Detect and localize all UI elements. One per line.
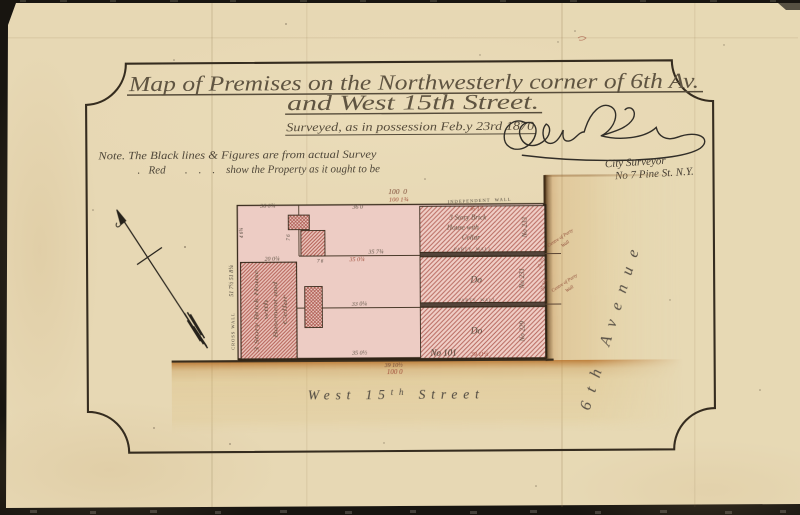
svg-text:No 233: No 233	[521, 217, 529, 239]
svg-text:3 Story Brick: 3 Story Brick	[448, 213, 487, 221]
svg-text:36 1¼: 36 1¼	[468, 206, 485, 212]
svg-text:7 6: 7 6	[287, 234, 292, 241]
svg-text:Note. The Black lines & Figure: Note. The Black lines & Figures are from…	[97, 149, 376, 163]
svg-text:35 0¼: 35 0¼	[349, 257, 366, 263]
svg-text:100 0: 100 0	[387, 368, 403, 376]
svg-text:and West 15th Street.: and West 15th Street.	[287, 90, 539, 116]
svg-text:PARTY WALL: PARTY WALL	[458, 297, 496, 302]
svg-text:Cellar: Cellar	[462, 234, 480, 242]
svg-text:100 0: 100 0	[388, 187, 407, 196]
svg-text:Basement and: Basement and	[272, 281, 279, 338]
svg-text:39 11¼: 39 11¼	[470, 352, 489, 358]
svg-text:Do: Do	[469, 275, 482, 285]
svg-text:No 101: No 101	[429, 348, 456, 358]
svg-text:No 229: No 229	[518, 321, 526, 343]
svg-text:51 7½ 51 8¼: 51 7½ 51 8¼	[228, 265, 235, 297]
svg-text:35 0½: 35 0½	[351, 350, 368, 357]
svg-text:. Red . . . s: . Red . . . show the Property as it ough…	[137, 163, 380, 176]
svg-text:4 6¾: 4 6¾	[240, 228, 245, 238]
svg-text:33 0¼: 33 0¼	[351, 302, 368, 308]
svg-text:3 Story Brick House: 3 Story Brick House	[253, 270, 261, 354]
svg-text:House with: House with	[446, 224, 479, 232]
svg-text:35 7¾: 35 7¾	[367, 250, 384, 256]
svg-text:PARTY WALL: PARTY WALL	[454, 246, 492, 251]
svg-text:36 0¾: 36 0¾	[259, 204, 276, 210]
svg-text:Cellar: Cellar	[282, 294, 289, 325]
svg-text:Do: Do	[470, 326, 483, 336]
svg-text:with: with	[263, 300, 270, 320]
svg-text:20 0¼: 20 0¼	[265, 257, 281, 263]
svg-text:CROSS WALL: CROSS WALL	[230, 312, 235, 350]
svg-text:7 6: 7 6	[317, 259, 324, 264]
svg-text:36 0: 36 0	[351, 205, 363, 211]
svg-text:100 1¾: 100 1¾	[389, 196, 409, 203]
svg-text:Surveyed, as in possession Feb: Surveyed, as in possession Feb.y 23rd 18…	[286, 119, 534, 135]
svg-text:No 231: No 231	[518, 268, 526, 289]
